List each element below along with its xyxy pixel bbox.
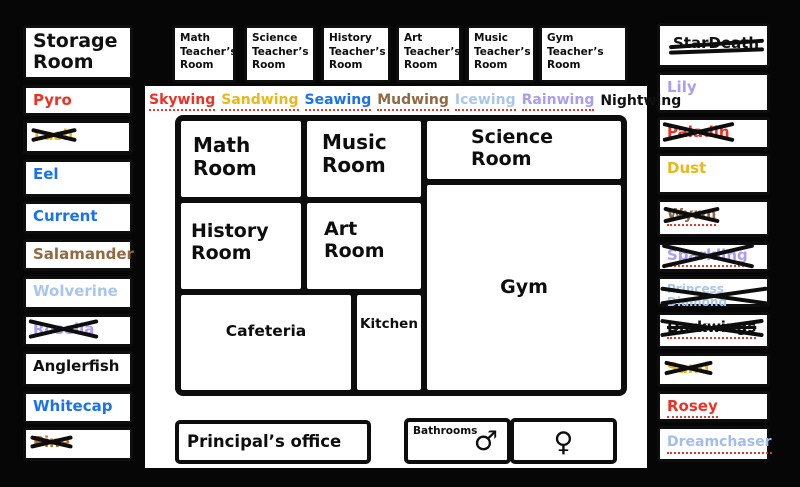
dragon-name: Pyro — [33, 92, 72, 109]
dragon-name-crossed: Pine — [33, 434, 70, 451]
room-label: Principal’s office — [187, 432, 341, 451]
left-item-pyro: Pyro — [23, 85, 133, 116]
male-icon: ♂ — [474, 428, 498, 455]
teacher-room-gym: Gym Teacher’s Room — [539, 25, 628, 83]
dragon-name-crossed: Rosella — [33, 321, 94, 338]
legend-tribe-nightwing: Nightwing — [600, 93, 681, 109]
bathroom-male: Bathrooms ♂ — [404, 418, 511, 464]
tribe-legend: Skywing Sandwing Seawing Mudwing Icewing… — [149, 89, 645, 113]
dragon-name: Eel — [33, 166, 59, 183]
right-item-stardeath: StarDeath — [657, 23, 770, 68]
room-label: Cafeteria — [226, 323, 306, 341]
right-item-wyrm: Wyrm — [657, 199, 770, 237]
legend-tribe-sandwing: Sandwing — [221, 92, 298, 111]
right-item-paladin: Paladin — [657, 117, 770, 150]
teacher-room-label: Science Teacher’s Room — [252, 32, 310, 73]
dragon-name-crossed: Darkwings — [667, 319, 756, 339]
left-item-eel: Eel — [23, 159, 133, 197]
room-label: Kitchen — [360, 317, 418, 333]
teacher-room-label: Math Teacher’s Room — [180, 32, 237, 73]
teacher-room-label: Gym Teacher’s Room — [547, 32, 605, 73]
right-item-dreamchaser: Dreamchaser — [657, 426, 770, 462]
dragon-name-crossed: Wyrm — [667, 206, 716, 226]
map-room-music: Music Room — [307, 121, 421, 197]
teacher-room-art: Art Teacher’s Room — [396, 25, 462, 83]
teacher-room-music: Music Teacher’s Room — [466, 25, 536, 83]
room-label: Storage Room — [33, 31, 123, 74]
legend-tribe-mudwing: Mudwing — [377, 92, 449, 111]
school-map: Storage Room Pyro Lash Eel Current Salam… — [0, 0, 800, 487]
right-item-princess-diamond: Princess Diamond — [657, 276, 770, 307]
left-item-rosella: Rosella — [23, 314, 133, 347]
female-icon: ♀ — [514, 429, 613, 456]
legend-tribe-seawing: Seawing — [305, 92, 372, 111]
left-item-anglerfish: Anglerfish — [23, 351, 133, 387]
dragon-name-crossed: Sand — [667, 360, 709, 377]
dragon-name: Whitecap — [33, 398, 112, 415]
right-item-rosey: Rosey — [657, 391, 770, 422]
dragon-name-crossed: Lash — [34, 127, 73, 144]
legend-tribe-skywing: Skywing — [149, 92, 215, 111]
dragon-name: Current — [33, 208, 98, 225]
teacher-room-label: Art Teacher’s Room — [404, 32, 461, 73]
right-item-sand: Sand — [657, 353, 770, 387]
right-item-darkwings: Darkwings — [657, 312, 770, 349]
room-label: Music Room — [322, 131, 402, 177]
map-room-math: Math Room — [181, 121, 301, 197]
dragon-name-crossed: Paladin — [667, 124, 730, 141]
map-room-gym: Gym — [427, 185, 621, 390]
dragon-name-crossed: Sparkling — [667, 247, 748, 267]
floor-plan: Math Room Music Room Science Room Histor… — [175, 115, 627, 396]
teacher-room-label: History Teacher’s Room — [329, 32, 386, 73]
legend-tribe-rainwing: Rainwing — [522, 92, 595, 111]
room-label: Science Room — [471, 127, 561, 171]
left-item-whitecap: Whitecap — [23, 391, 133, 424]
room-label: Art Room — [324, 219, 379, 263]
room-label: Gym — [500, 277, 548, 299]
right-item-dust: Dust — [657, 153, 770, 195]
bathroom-female: ♀ — [510, 418, 617, 464]
dragon-name-struck: StarDeath — [673, 35, 759, 52]
map-room-cafeteria: Cafeteria — [181, 295, 351, 390]
left-item-wolverine: Wolverine — [23, 276, 133, 310]
dragon-name: Anglerfish — [33, 358, 119, 375]
dragon-name: Dust — [667, 160, 706, 177]
dragon-name: Wolverine — [33, 283, 118, 300]
map-room-science: Science Room — [427, 121, 621, 179]
left-item-storage-room: Storage Room — [23, 25, 133, 80]
legend-tribe-icewing: Icewing — [455, 92, 516, 111]
map-room-kitchen: Kitchen — [357, 295, 421, 390]
dragon-name-crossed: Princess Diamond — [667, 283, 760, 310]
map-room-history: History Room — [181, 203, 301, 289]
teacher-room-math: Math Teacher’s Room — [172, 25, 236, 83]
left-item-current: Current — [23, 201, 133, 234]
dragon-name: Salamander — [33, 246, 134, 263]
teacher-room-history: History Teacher’s Room — [321, 25, 391, 83]
map-room-art: Art Room — [307, 203, 421, 289]
room-label: History Room — [191, 221, 276, 265]
right-item-sparkling: Sparkling — [657, 242, 770, 272]
dragon-name: Dreamchaser — [667, 435, 772, 454]
left-item-pine: Pine — [23, 427, 133, 461]
teacher-room-science: Science Teacher’s Room — [244, 25, 316, 83]
dragon-name: Rosey — [667, 398, 718, 418]
teacher-room-label: Music Teacher’s Room — [474, 32, 531, 73]
left-item-salamander: Salamander — [23, 239, 133, 271]
left-item-lash: Lash — [23, 119, 133, 155]
bathrooms-label: Bathrooms — [413, 425, 477, 437]
principals-office: Principal’s office — [175, 420, 371, 464]
room-label: Math Room — [193, 134, 273, 180]
